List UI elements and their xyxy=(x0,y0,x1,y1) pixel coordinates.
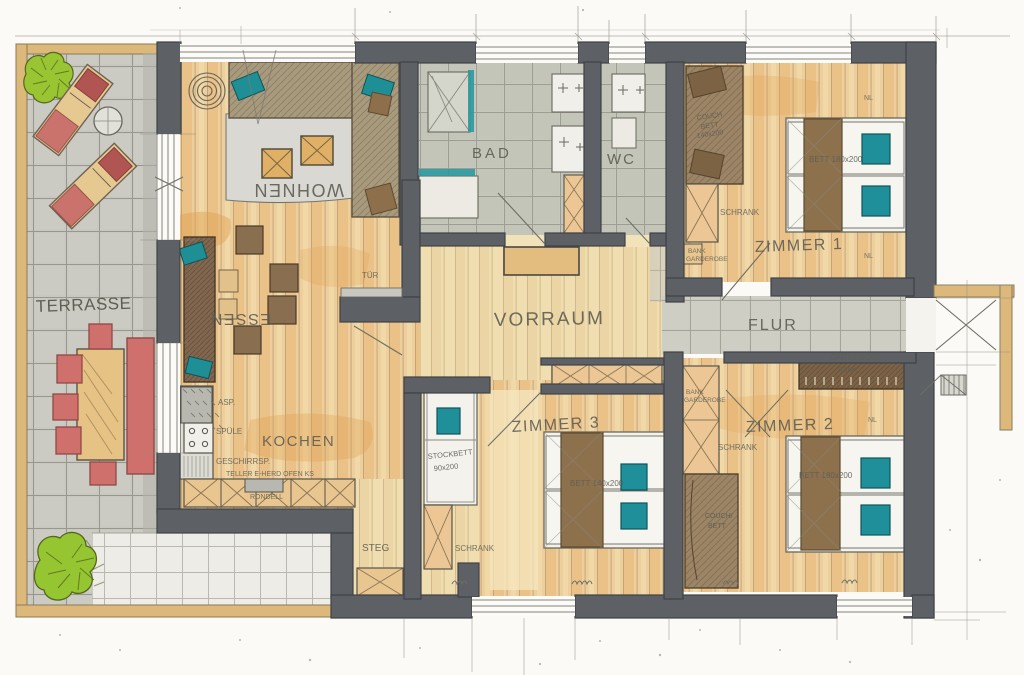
svg-text:NL: NL xyxy=(864,253,873,260)
svg-text:SCHRANK: SCHRANK xyxy=(720,208,760,217)
svg-text:BETT 180x200: BETT 180x200 xyxy=(809,155,863,164)
svg-text:ASP.: ASP. xyxy=(218,398,235,407)
svg-text:GARDEROBE: GARDEROBE xyxy=(684,397,726,404)
svg-text:VORRAUM: VORRAUM xyxy=(494,308,605,331)
svg-text:SCHRANK: SCHRANK xyxy=(718,443,758,452)
svg-text:KOCHEN: KOCHEN xyxy=(262,433,335,450)
svg-text:ZIMMER 2: ZIMMER 2 xyxy=(746,416,835,436)
svg-text:BANK: BANK xyxy=(686,389,704,396)
svg-text:BANK: BANK xyxy=(838,367,857,374)
svg-text:ESSEN: ESSEN xyxy=(209,310,271,327)
svg-text:BETT 180x200: BETT 180x200 xyxy=(799,471,853,480)
svg-text:GARDEROBE: GARDEROBE xyxy=(686,256,728,263)
svg-text:SPÜLE: SPÜLE xyxy=(216,427,242,436)
svg-text:TERRASSE: TERRASSE xyxy=(35,294,131,316)
svg-text:BANK: BANK xyxy=(688,248,706,255)
svg-text:TÜR: TÜR xyxy=(362,271,379,280)
svg-text:RONDELL: RONDELL xyxy=(250,494,283,501)
svg-text:SCHRANK: SCHRANK xyxy=(455,544,495,553)
svg-text:BETT: BETT xyxy=(708,523,727,530)
svg-text:COUCH/: COUCH/ xyxy=(705,513,733,520)
svg-text:GESCHIRRSP.: GESCHIRRSP. xyxy=(216,457,270,466)
svg-text:TELLER E-HERD OFEN KS: TELLER E-HERD OFEN KS xyxy=(226,471,314,478)
svg-text:NL: NL xyxy=(864,95,873,102)
svg-text:FLUR: FLUR xyxy=(748,317,798,334)
svg-text:WOHNEN: WOHNEN xyxy=(253,180,344,200)
svg-text:BAD: BAD xyxy=(472,145,512,162)
svg-text:NL: NL xyxy=(868,417,877,424)
svg-text:BETT 140x200: BETT 140x200 xyxy=(570,479,624,488)
svg-text:WC: WC xyxy=(607,151,636,168)
svg-text:STEG: STEG xyxy=(362,543,389,554)
svg-text:GARDEROBE: GARDEROBE xyxy=(830,353,881,362)
svg-text:ZIMMER 1: ZIMMER 1 xyxy=(755,236,844,256)
